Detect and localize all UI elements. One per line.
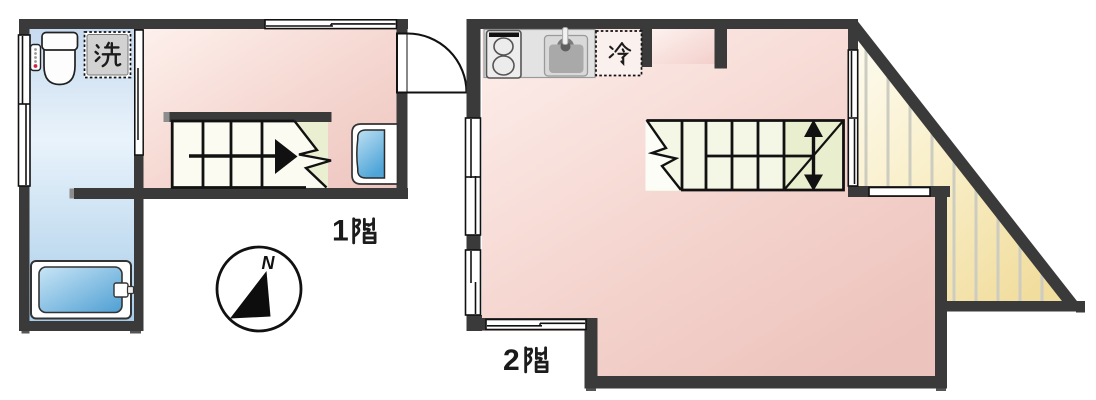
svg-text:N: N [262,253,276,273]
svg-text:1: 1 [332,215,349,248]
svg-text:2: 2 [503,344,520,377]
